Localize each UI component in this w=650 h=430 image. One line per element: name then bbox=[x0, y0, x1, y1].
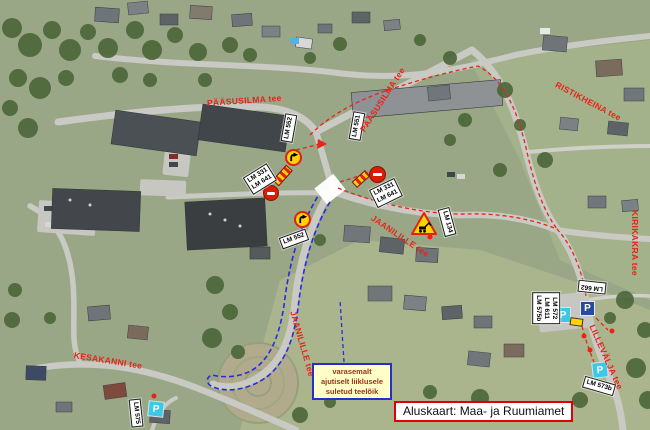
closure-note-line: varasemalt bbox=[332, 367, 371, 377]
parking-glyph: P bbox=[152, 403, 160, 415]
detour-arrow-icon bbox=[285, 149, 302, 166]
note-leader-line bbox=[340, 300, 344, 362]
street-label-kirikakra: KIRIKAKRA tee bbox=[630, 210, 640, 276]
sign-panel-icon bbox=[570, 317, 584, 327]
parking-icon: P bbox=[147, 400, 165, 418]
detour-arrow-icon bbox=[294, 211, 311, 228]
parking-icon: P bbox=[580, 301, 595, 316]
sign-label-line: LM 572 bbox=[550, 295, 558, 321]
parking-glyph: P bbox=[584, 303, 591, 314]
parking-glyph: P bbox=[560, 310, 567, 321]
sign-label-parking-stack: LM 572 LM 611 LM 575b bbox=[532, 292, 560, 324]
sign-label-line: LM 611 bbox=[542, 295, 550, 321]
traffic-scheme-map: P P P P LM 552 LM 551 LM 331 LM 641 LM 3… bbox=[0, 0, 650, 430]
no-entry-icon bbox=[369, 166, 386, 183]
detour-arrow-head bbox=[317, 139, 327, 149]
parking-glyph: P bbox=[596, 364, 604, 376]
closure-note-line: suletud teelõik bbox=[326, 387, 379, 397]
roadworks-icon bbox=[411, 212, 437, 235]
sign-label-line: LM 575b bbox=[534, 295, 542, 321]
basemap-credit-label: Aluskaart: Maa- ja Ruumiamet bbox=[394, 401, 573, 422]
closure-note-box: varasemalt ajutiselt liiklusele suletud … bbox=[312, 363, 392, 400]
closure-note-line: ajutiselt liiklusele bbox=[321, 377, 383, 387]
